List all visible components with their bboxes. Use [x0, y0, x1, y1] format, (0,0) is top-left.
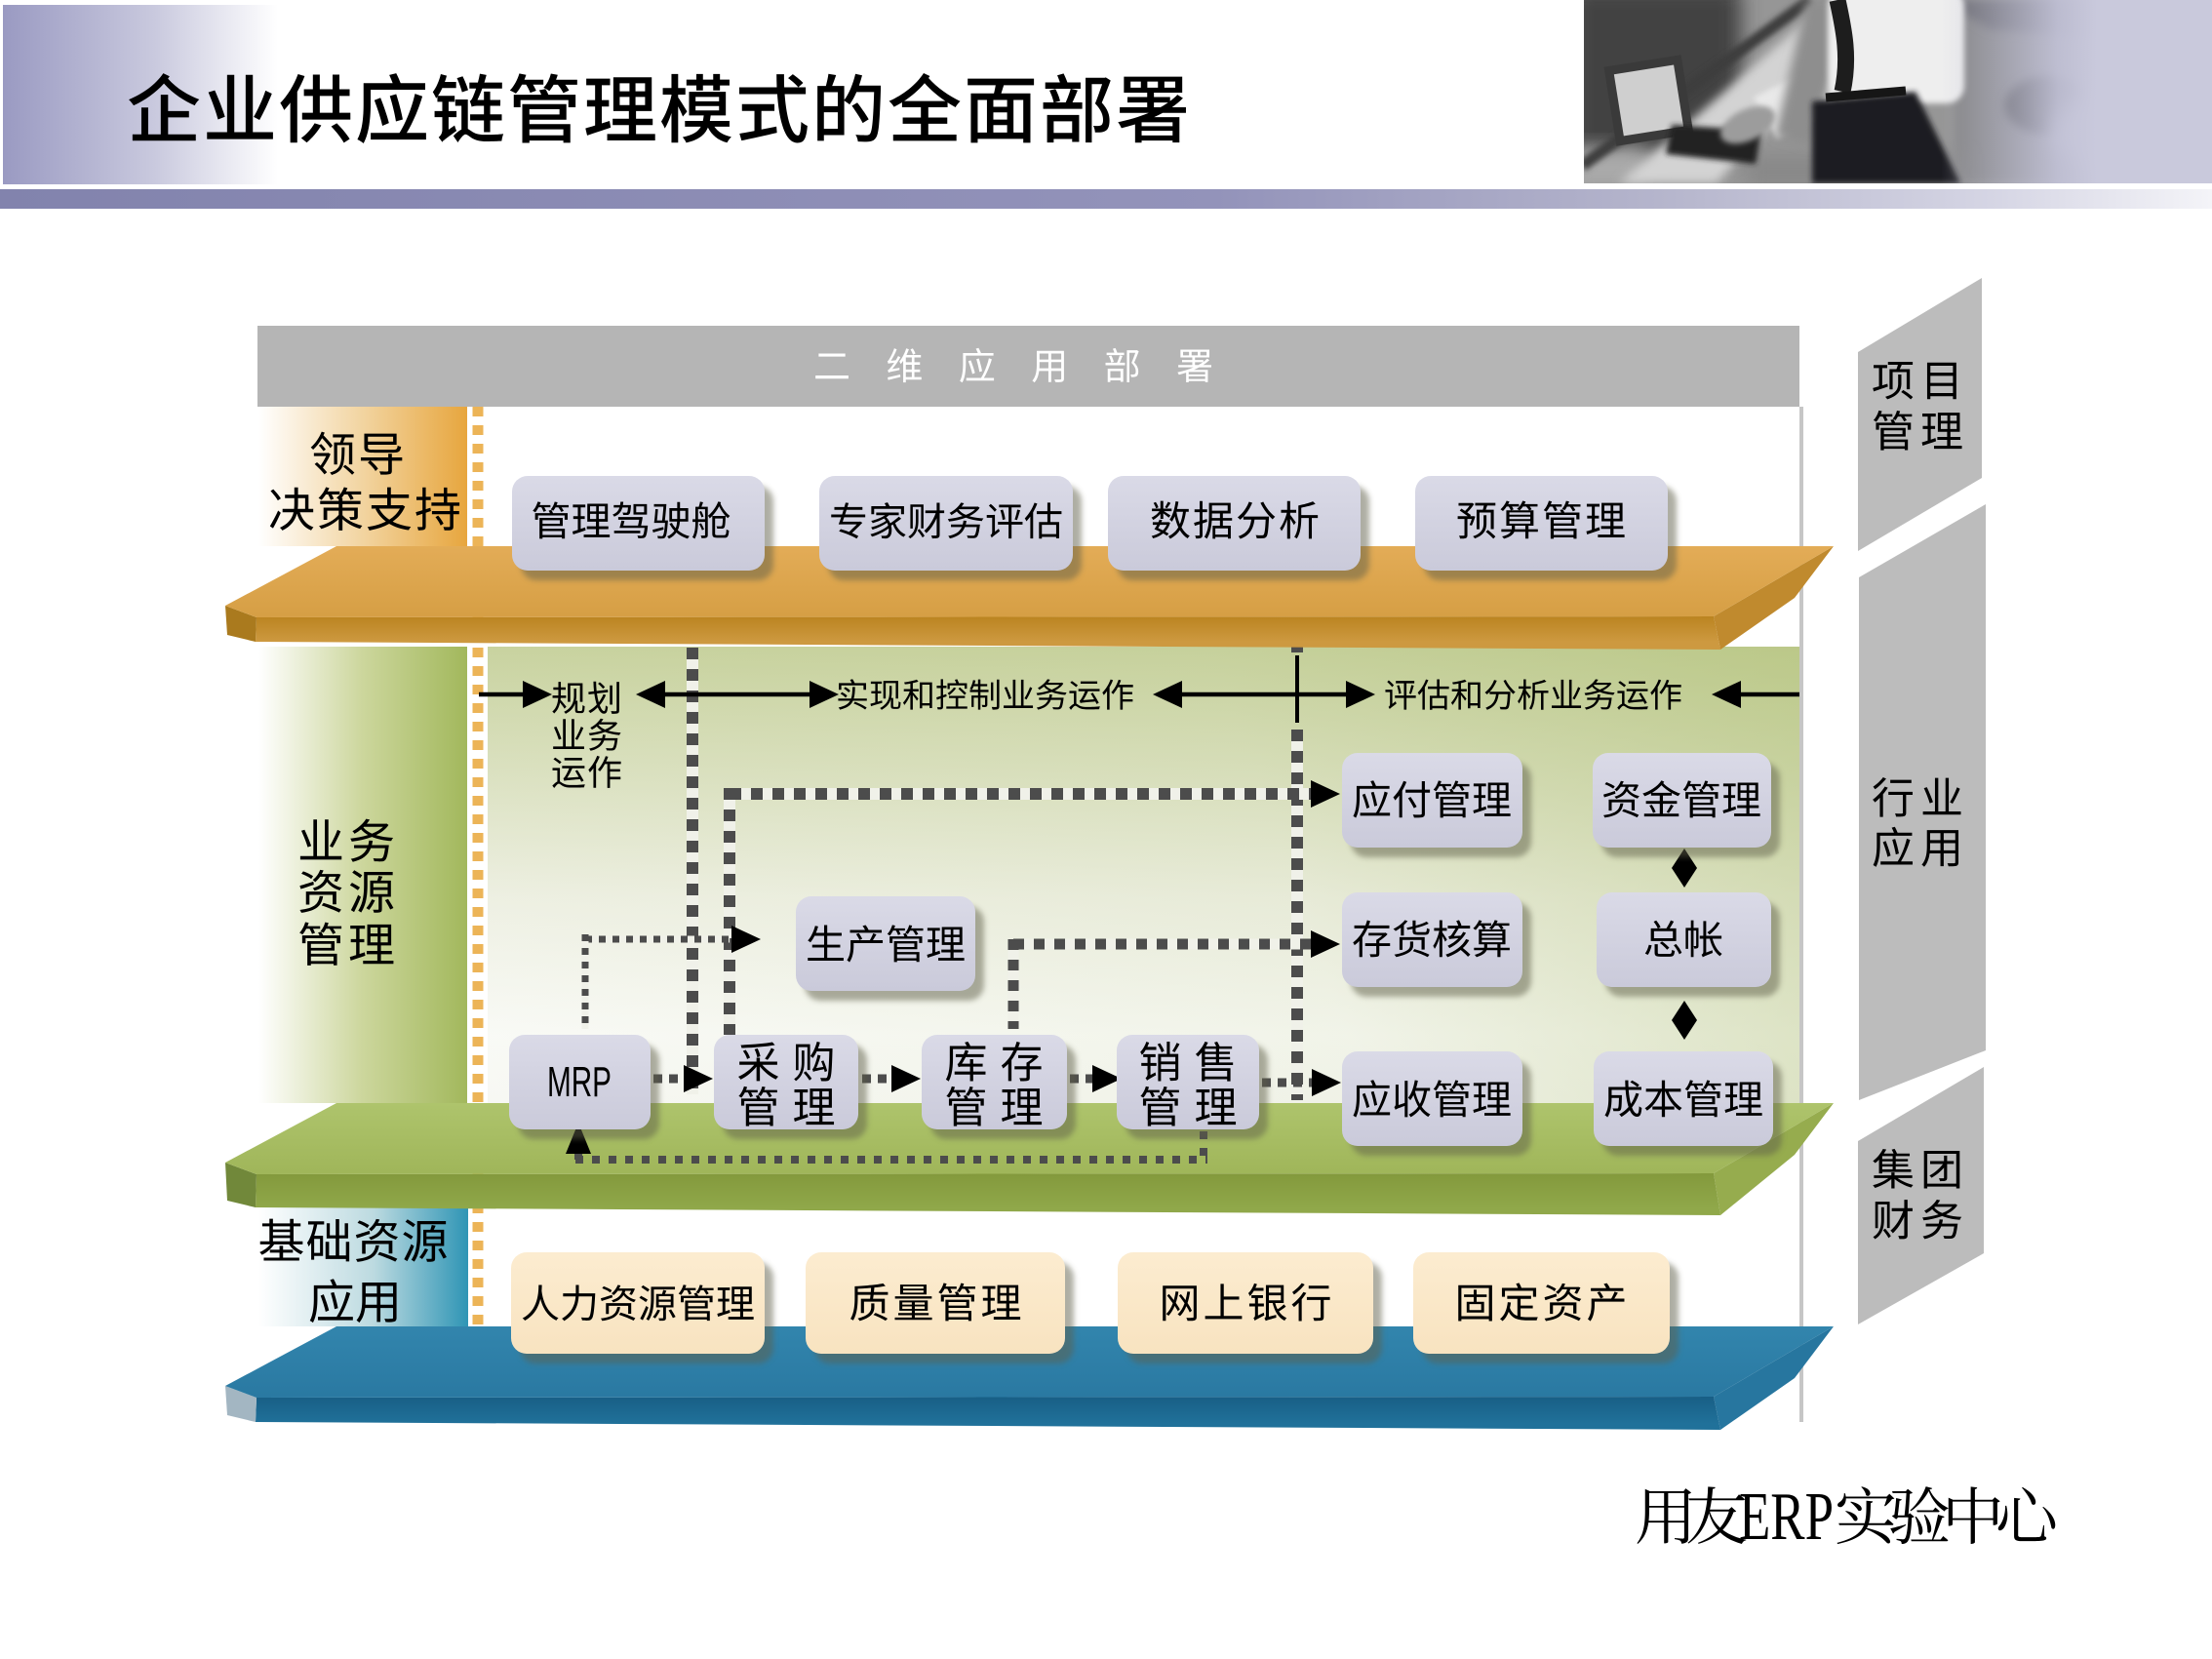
svg-text:ERP: ERP [1739, 1480, 1834, 1555]
svg-text:MRP: MRP [547, 1058, 612, 1106]
